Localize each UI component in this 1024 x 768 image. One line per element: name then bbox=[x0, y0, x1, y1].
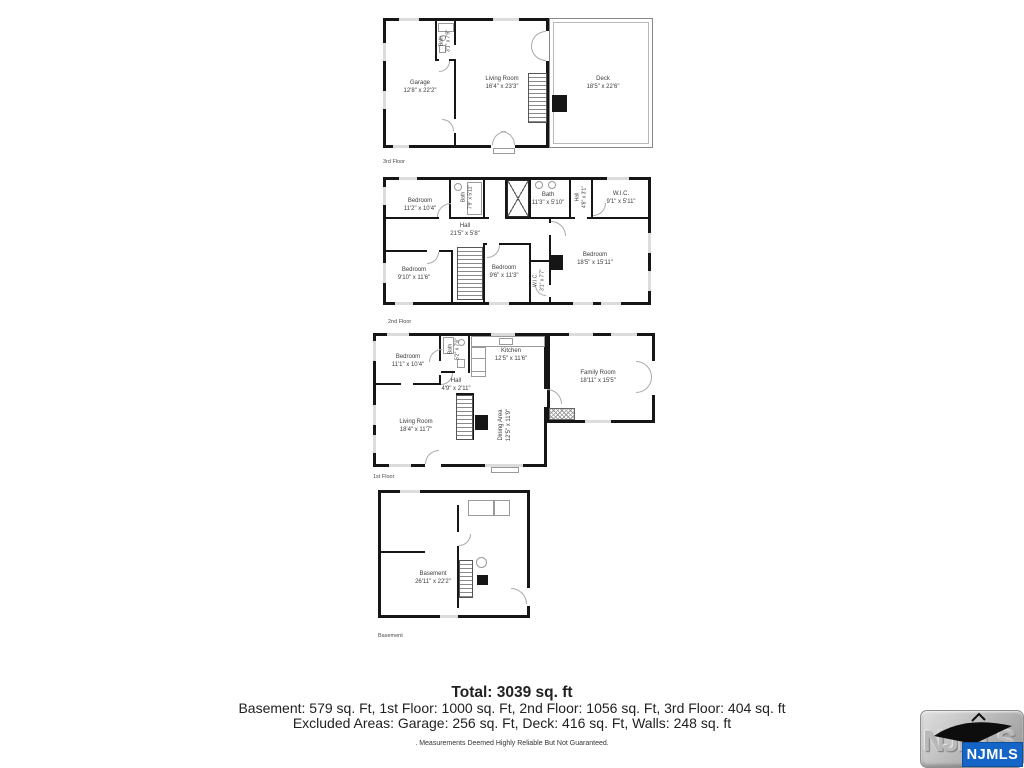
window-marker bbox=[399, 18, 419, 21]
njmls-logo: NJMLS NJMLS bbox=[920, 710, 1024, 768]
hearth-hatch bbox=[549, 408, 575, 420]
room-label-wic: W.I.C. 3'1" x 7'7" bbox=[532, 269, 546, 291]
room-label-bedroom: Bedroom 9'6" x 11'3" bbox=[489, 264, 518, 280]
window-marker bbox=[373, 341, 376, 361]
chimney-block bbox=[477, 575, 488, 585]
disclaimer-text: . Measurements Deemed Highly Reliable Bu… bbox=[0, 740, 1024, 747]
room-name: Bath bbox=[438, 30, 445, 52]
room-dims: 18'4" x 11'7" bbox=[399, 426, 432, 434]
room-dims: 4'9" x 2'11" bbox=[441, 385, 470, 393]
window-marker bbox=[489, 302, 509, 305]
window-marker bbox=[383, 187, 386, 205]
room-dims: 9'10" x 11'6" bbox=[398, 274, 430, 282]
laundry-fixture bbox=[468, 500, 494, 516]
room-name: Garage bbox=[404, 79, 437, 87]
room-label-basement: Basement 26'11" x 22'2" bbox=[415, 570, 451, 586]
window-marker bbox=[569, 333, 593, 336]
window-marker bbox=[383, 91, 386, 109]
linen-closet bbox=[507, 180, 529, 217]
wall bbox=[505, 217, 575, 219]
room-name: Hall bbox=[441, 377, 470, 385]
room-dims: 12'8" x 22'2" bbox=[404, 87, 437, 95]
wall bbox=[413, 383, 441, 385]
door-gap bbox=[652, 361, 655, 395]
room-name: Basement bbox=[415, 570, 451, 578]
room-label-living-room: Living Room 18'4" x 11'7" bbox=[399, 418, 432, 434]
floor-plan-3rd: Garage 12'8" x 22'2" Living Room 16'4" x… bbox=[383, 15, 653, 170]
room-dims: 4'8" x 3'1" bbox=[581, 186, 588, 208]
room-dims: 21'5" x 5'8" bbox=[450, 230, 480, 238]
floor-areas-text: Basement: 579 sq. Ft, 1st Floor: 1000 sq… bbox=[0, 701, 1024, 716]
njmls-logo-text: NJMLS bbox=[962, 742, 1023, 767]
sink-fixture bbox=[499, 338, 513, 345]
room-name: Bath bbox=[447, 338, 454, 360]
wall bbox=[383, 217, 439, 219]
room-name: Bedroom bbox=[392, 353, 424, 361]
room-name: Bedroom bbox=[489, 264, 518, 272]
floor-plan-basement: Basement 26'11" x 22'2" Basement bbox=[378, 490, 530, 640]
water-heater-fixture bbox=[476, 557, 487, 568]
room-label-bedroom: Bedroom 18'5" x 15'11" bbox=[577, 251, 613, 267]
room-label-kitchen: Kitchen 12'5" x 11'6" bbox=[495, 347, 527, 363]
window-marker bbox=[648, 271, 651, 291]
room-name: Living Room bbox=[399, 418, 432, 426]
room-name: Living Room bbox=[485, 75, 518, 83]
wall bbox=[483, 243, 485, 305]
room-label-bath: Bath 7'9" x 5'11" bbox=[460, 185, 474, 209]
room-dims: 26'11" x 22'2" bbox=[415, 578, 451, 586]
room-label-family-room: Family Room 18'11" x 15'5" bbox=[580, 369, 616, 385]
room-name: Hall bbox=[574, 186, 581, 208]
utility-sink-fixture bbox=[494, 500, 510, 516]
window-marker bbox=[373, 405, 376, 425]
window-marker bbox=[648, 233, 651, 253]
room-name: Bath bbox=[460, 185, 467, 209]
window-marker bbox=[393, 145, 409, 148]
room-dims: 18'11" x 15'5" bbox=[580, 377, 616, 385]
room-dims: 12'5" x 11'9" bbox=[505, 409, 513, 441]
area-summary: Total: 3039 sq. ft Basement: 579 sq. Ft,… bbox=[0, 685, 1024, 747]
room-dims: 11'1" x 10'4" bbox=[392, 361, 424, 369]
wall bbox=[457, 505, 459, 532]
floor-tag-2nd: 2nd Floor bbox=[388, 319, 411, 325]
toilet-fixture bbox=[457, 359, 465, 368]
wall bbox=[468, 336, 470, 373]
stove-fixture bbox=[471, 358, 486, 372]
entry-steps bbox=[491, 467, 519, 473]
wall bbox=[378, 551, 425, 553]
sink-fixture bbox=[548, 181, 556, 189]
window-marker bbox=[395, 302, 413, 305]
room-label-bath: Bath 11'3" x 5'10" bbox=[532, 191, 564, 207]
room-name: Bedroom bbox=[398, 266, 430, 274]
floor-plan-2nd: Bedroom 11'2" x 10'4" Bath 7'9" x 5'11" … bbox=[383, 177, 651, 332]
wall bbox=[373, 383, 401, 385]
room-label-hall: Hall 21'5" x 5'8" bbox=[450, 222, 480, 238]
chimney-block bbox=[551, 255, 563, 270]
room-dims: 5'2" x 7'6" bbox=[454, 338, 461, 360]
room-name: W.I.C. bbox=[606, 190, 635, 198]
excluded-areas-text: Excluded Areas: Garage: 256 sq. Ft, Deck… bbox=[0, 716, 1024, 731]
room-label-bedroom: Bedroom 11'2" x 10'4" bbox=[404, 197, 436, 213]
room-name: Hall bbox=[450, 222, 480, 230]
window-marker bbox=[383, 43, 386, 61]
sink-fixture bbox=[535, 181, 543, 189]
room-name: Bedroom bbox=[577, 251, 613, 259]
total-area-text: Total: 3039 sq. ft bbox=[0, 685, 1024, 701]
room-label-bedroom: Bedroom 9'10" x 11'6" bbox=[398, 266, 430, 282]
floor-tag-3rd: 3rd Floor bbox=[383, 159, 405, 165]
room-label-bedroom: Bedroom 11'1" x 10'4" bbox=[392, 353, 424, 369]
room-name: Deck bbox=[587, 75, 620, 83]
room-dims: 7'9" x 5'11" bbox=[467, 185, 474, 209]
room-label-dining-area: Dining Area 12'5" x 11'9" bbox=[497, 409, 513, 441]
wall bbox=[483, 180, 485, 219]
window-marker bbox=[387, 333, 409, 336]
stairs bbox=[528, 73, 547, 123]
wall bbox=[569, 180, 571, 219]
room-name: Bath bbox=[532, 191, 564, 199]
door-gap bbox=[546, 31, 549, 61]
wall bbox=[529, 260, 551, 262]
wall bbox=[549, 297, 551, 305]
door-gap bbox=[425, 464, 441, 467]
room-name: Kitchen bbox=[495, 347, 527, 355]
room-label-deck: Deck 18'5" x 22'6" bbox=[587, 75, 620, 91]
window-marker bbox=[399, 177, 417, 180]
njmls-swoosh-icon bbox=[928, 712, 1016, 746]
chimney-block bbox=[475, 415, 488, 430]
room-label-hall: Hall 4'8" x 3'1" bbox=[574, 186, 588, 208]
floor-plan-sheet: Garage 12'8" x 22'2" Living Room 16'4" x… bbox=[0, 0, 1024, 768]
wall bbox=[451, 250, 453, 305]
room-label-hall: Hall 4'9" x 2'11" bbox=[441, 377, 470, 393]
floor-tag-basement: Basement bbox=[378, 633, 403, 639]
window-marker bbox=[611, 333, 637, 336]
room-dims: 16'4" x 23'3" bbox=[485, 83, 518, 91]
room-label-bath: Bath 5'2" x 7'6" bbox=[447, 338, 461, 360]
window-marker bbox=[607, 177, 629, 180]
floor-tag-1st: 1st Floor bbox=[373, 474, 394, 480]
window-marker bbox=[573, 302, 593, 305]
window-marker bbox=[440, 615, 458, 618]
stairs bbox=[457, 247, 483, 300]
wall bbox=[454, 21, 456, 45]
wall bbox=[454, 133, 456, 148]
room-dims: 3'1" x 7'9" bbox=[445, 30, 452, 52]
room-name: Family Room bbox=[580, 369, 616, 377]
room-label-wic: W.I.C. 9'1" x 5'11" bbox=[606, 190, 635, 206]
room-dims: 18'5" x 15'11" bbox=[577, 259, 613, 267]
room-name: W.I.C. bbox=[532, 269, 539, 291]
stairs bbox=[459, 560, 473, 598]
room-dims: 9'6" x 11'3" bbox=[489, 272, 518, 280]
door-gap bbox=[527, 588, 530, 606]
stairs bbox=[456, 395, 473, 440]
window-marker bbox=[585, 420, 611, 423]
window-marker bbox=[601, 302, 621, 305]
window-marker bbox=[373, 435, 376, 453]
room-dims: 11'3" x 5'10" bbox=[532, 199, 564, 207]
chimney-block bbox=[552, 95, 567, 112]
floor-plan-1st: Bedroom 11'1" x 10'4" Bath 5'2" x 7'6" K… bbox=[373, 333, 655, 483]
window-marker bbox=[389, 464, 411, 467]
window-marker bbox=[383, 263, 386, 283]
room-dims: 11'2" x 10'4" bbox=[404, 205, 436, 213]
window-marker bbox=[493, 18, 519, 21]
wall bbox=[454, 59, 456, 119]
room-label-garage: Garage 12'8" x 22'2" bbox=[404, 79, 437, 95]
wall bbox=[383, 250, 427, 252]
room-dims: 3'1" x 7'7" bbox=[539, 269, 546, 291]
window-marker bbox=[491, 333, 515, 336]
wall bbox=[529, 180, 531, 219]
room-name: Bedroom bbox=[404, 197, 436, 205]
room-dims: 9'1" x 5'11" bbox=[606, 198, 635, 206]
wall bbox=[435, 21, 437, 61]
room-dims: 18'5" x 22'6" bbox=[587, 83, 620, 91]
window-marker bbox=[400, 490, 420, 493]
room-dims: 12'5" x 11'6" bbox=[495, 355, 527, 363]
wall bbox=[587, 217, 651, 219]
entry-steps bbox=[493, 148, 515, 154]
room-name: Dining Area bbox=[497, 409, 505, 441]
room-label-living-room: Living Room 16'4" x 23'3" bbox=[485, 75, 518, 91]
wall bbox=[529, 243, 531, 305]
room-label-bath: Bath 3'1" x 7'9" bbox=[438, 30, 452, 52]
